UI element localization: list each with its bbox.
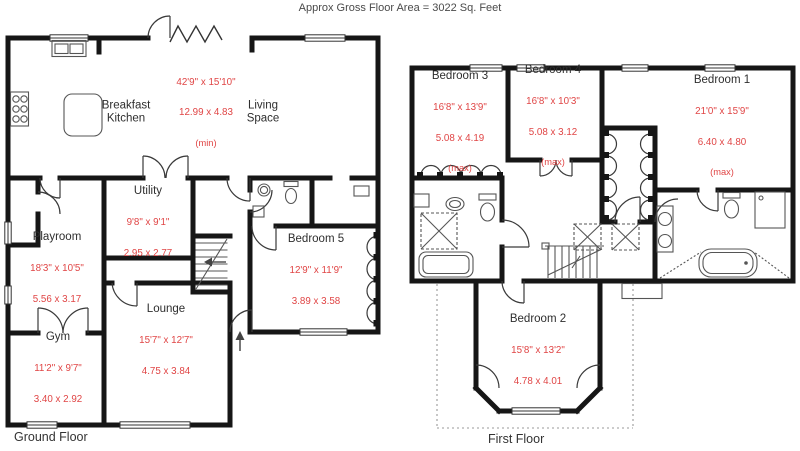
- room-label-breakfast-kitchen: Breakfast Kitchen: [91, 81, 161, 146]
- room-label-utility: Utility 9'8" x 9'1" 2.95 x 2.77: [124, 166, 172, 278]
- floorplan-page: { "header": { "title": "Approx Gross Flo…: [0, 0, 800, 451]
- stairs-first: [542, 243, 604, 278]
- kitchen-hob: [11, 92, 29, 126]
- ensuite: [657, 192, 789, 278]
- room-label-lounge: Lounge 15'7" x 12'7" 4.75 x 3.84: [139, 284, 193, 396]
- kitchen-sink: [52, 41, 86, 57]
- room-name: Breakfast Kitchen: [91, 99, 161, 126]
- room-label-bedroom-3: Bedroom 3 16'8" x 13'9" 5.08 x 4.19 (max…: [432, 51, 488, 193]
- boiler: [354, 186, 369, 196]
- ground-floor-label: Ground Floor: [14, 430, 88, 444]
- family-bathroom: [414, 194, 496, 277]
- wc-fixtures: [253, 182, 298, 218]
- room-label-bedroom-4: Bedroom 4 16'8" x 10'3" 5.08 x 3.12 (max…: [525, 45, 581, 187]
- first-floor-label: First Floor: [488, 432, 544, 446]
- zigzag-opening: [170, 26, 222, 42]
- room-name: Living Space: [239, 99, 287, 126]
- entrance-arrow: [236, 331, 245, 351]
- room-dims-kitchen-living: 42'9" x 15'10" 12.99 x 4.83 (min): [176, 58, 235, 168]
- dormer: [622, 284, 662, 299]
- room-label-living-space: Living Space: [239, 81, 287, 146]
- room-label-playroom: Playroom 18'3" x 10'5" 5.56 x 3.17: [30, 212, 84, 324]
- room-label-bedroom-5: Bedroom 5 12'9" x 11'9" 3.89 x 3.58: [288, 214, 344, 326]
- room-label-bedroom-2: Bedroom 2 15'8" x 13'2" 4.78 x 4.01: [510, 294, 566, 406]
- room-label-gym: Gym 11'2" x 9'7" 3.40 x 2.92: [34, 312, 82, 424]
- floorplan-canvas: [0, 0, 800, 451]
- page-title: Approx Gross Floor Area = 3022 Sq. Feet: [299, 2, 502, 14]
- room-label-bedroom-1: Bedroom 1 21'0" x 15'9" 6.40 x 4.80 (max…: [694, 55, 750, 197]
